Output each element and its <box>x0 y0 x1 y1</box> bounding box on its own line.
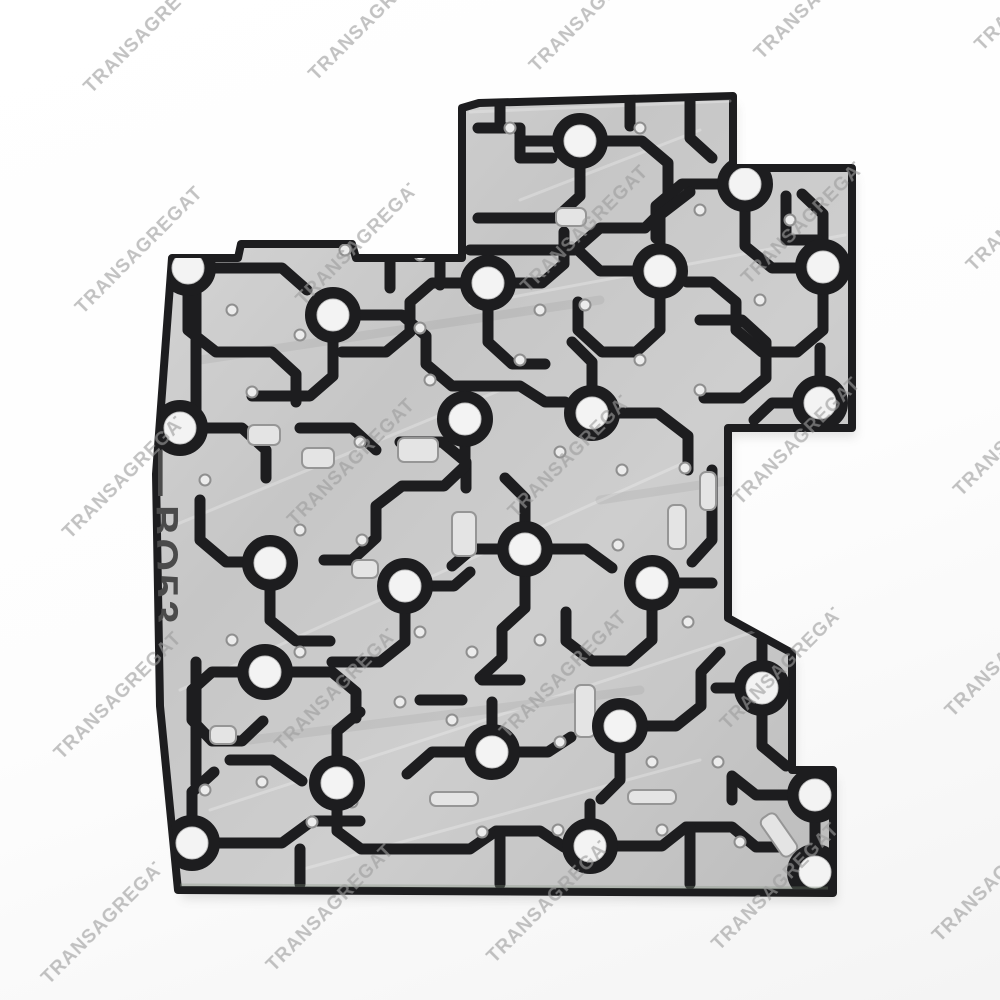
watermark-overlay <box>0 0 1000 1000</box>
separator-plate-image: TRANSAGREGAT TRANSAGREGAT — BO53 <box>0 0 1000 1000</box>
product-photo: TRANSAGREGAT TRANSAGREGAT — BO53 <box>0 0 1000 1000</box>
